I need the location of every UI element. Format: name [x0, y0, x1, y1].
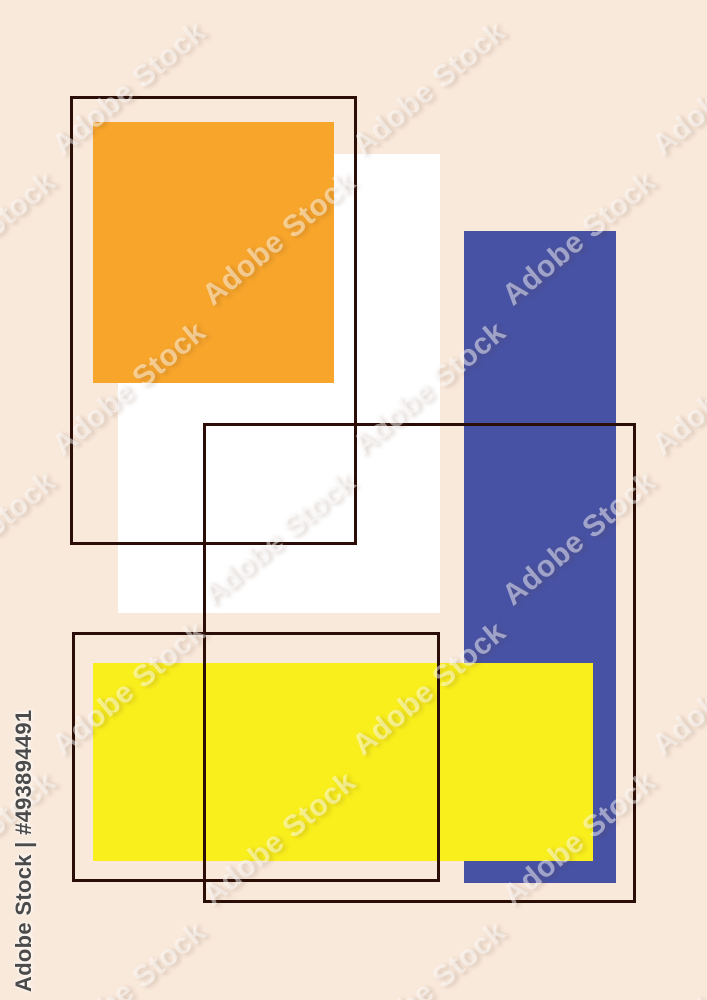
stock-id-watermark: Adobe Stock | #493894491	[11, 710, 37, 992]
adobe-stock-watermark-tile: Adobe Stock	[496, 465, 663, 612]
adobe-stock-watermark-tile: Adobe Stock	[196, 765, 363, 912]
adobe-stock-watermark-tile: Adobe Stock	[0, 465, 63, 612]
adobe-stock-watermark-tile: Adobe Stock	[196, 165, 363, 312]
adobe-stock-watermark-tile: Adobe Stock	[46, 315, 213, 462]
artwork-canvas: Adobe StockAdobe StockAdobe StockAdobe S…	[0, 0, 707, 1000]
adobe-stock-watermark-tile: Adobe Stock	[346, 915, 513, 1000]
adobe-stock-watermark-tile: Adobe Stock	[46, 915, 213, 1000]
adobe-stock-watermark-tile: Adobe Stock	[646, 615, 707, 762]
adobe-stock-watermark-tile: Adobe Stock	[496, 765, 663, 912]
adobe-stock-watermark-tile: Adobe Stock	[46, 15, 213, 162]
adobe-stock-watermark-tile: Adobe Stock	[346, 315, 513, 462]
watermark-layer: Adobe StockAdobe StockAdobe StockAdobe S…	[0, 0, 707, 1000]
adobe-stock-watermark-tile: Adobe Stock	[646, 15, 707, 162]
adobe-stock-watermark-tile: Adobe Stock	[346, 615, 513, 762]
adobe-stock-watermark-tile: Adobe Stock	[646, 315, 707, 462]
adobe-stock-watermark-tile: Adobe Stock	[646, 915, 707, 1000]
adobe-stock-watermark-tile: Adobe Stock	[496, 165, 663, 312]
adobe-stock-watermark-tile: Adobe Stock	[196, 465, 363, 612]
adobe-stock-watermark-tile: Adobe Stock	[346, 15, 513, 162]
adobe-stock-watermark-tile: Adobe Stock	[0, 165, 63, 312]
adobe-stock-watermark-tile: Adobe Stock	[46, 615, 213, 762]
